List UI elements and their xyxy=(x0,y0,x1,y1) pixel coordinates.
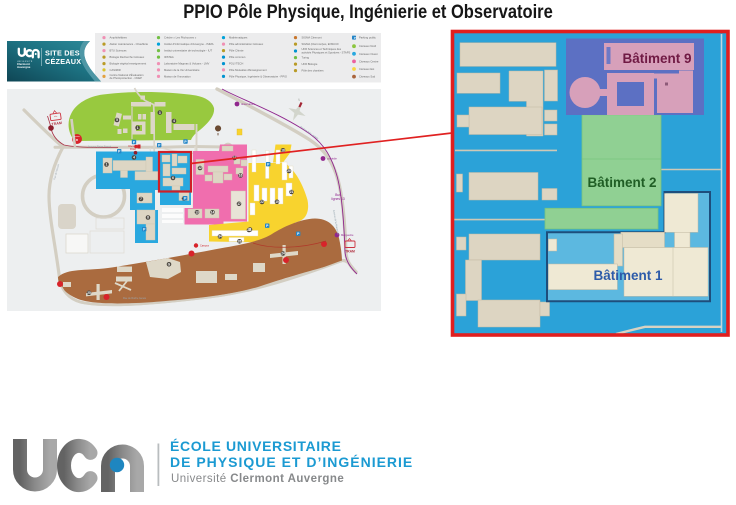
svg-text:lignes 13: lignes 13 xyxy=(331,197,345,201)
svg-text:comédie: comédie xyxy=(327,157,337,161)
svg-text:POLYTECH: POLYTECH xyxy=(229,62,243,66)
svg-text:Cézeaux Sud: Cézeaux Sud xyxy=(359,75,376,79)
svg-text:Bâtiment 1: Bâtiment 1 xyxy=(593,268,663,283)
svg-text:4: 4 xyxy=(173,119,175,123)
svg-text:Maison de la Vie Universitaire: Maison de la Vie Universitaire xyxy=(164,68,200,72)
svg-text:5: 5 xyxy=(116,118,118,122)
svg-text:Turing: Turing xyxy=(302,56,310,60)
svg-text:19: 19 xyxy=(275,200,279,204)
svg-text:Pétair: Pétair xyxy=(130,148,136,151)
svg-text:6: 6 xyxy=(172,176,174,180)
svg-text:18: 18 xyxy=(281,149,285,153)
svg-text:Cézeaux Nord: Cézeaux Nord xyxy=(359,44,377,48)
svg-text:IRSTEA: IRSTEA xyxy=(164,55,174,59)
svg-text:3: 3 xyxy=(159,111,161,115)
svg-text:Pôle Mutualisé d'Enseignement: Pôle Mutualisé d'Enseignement xyxy=(229,68,267,72)
svg-text:Rue de Roche Genès: Rue de Roche Genès xyxy=(123,297,147,300)
svg-text:SIGMA Clermont: SIGMA Clermont xyxy=(302,36,322,40)
svg-text:21: 21 xyxy=(290,190,294,194)
svg-text:de Photoprotection - CNEP: de Photoprotection - CNEP xyxy=(110,76,143,80)
svg-text:Biologie Recherche Cézeaux: Biologie Recherche Cézeaux xyxy=(110,55,145,59)
svg-text:Parking public: Parking public xyxy=(359,36,377,40)
svg-text:Amphithéâtres: Amphithéâtres xyxy=(110,36,128,40)
svg-text:25: 25 xyxy=(87,291,91,295)
svg-text:17: 17 xyxy=(237,202,241,206)
svg-text:CÉZEAUX: CÉZEAUX xyxy=(45,57,81,66)
svg-text:Pôle Chimie: Pôle Chimie xyxy=(229,49,244,53)
svg-text:Laboratoire Magmas & Volcans -: Laboratoire Magmas & Volcans - LMV xyxy=(164,62,209,66)
svg-text:20: 20 xyxy=(287,169,291,173)
svg-text:22: 22 xyxy=(260,200,264,204)
svg-text:4: 4 xyxy=(133,156,135,160)
svg-text:Atelier maintenance - Chauffer: Atelier maintenance - Chaufferie xyxy=(110,42,149,46)
svg-text:1: 1 xyxy=(137,126,139,130)
svg-text:P: P xyxy=(354,36,356,40)
svg-text:Pôle administration Cézeaux: Pôle administration Cézeaux xyxy=(229,42,264,46)
svg-text:UFR Biologie: UFR Biologie xyxy=(302,62,318,66)
svg-text:8: 8 xyxy=(147,216,149,220)
svg-text:SIGMA (Clermont)es, ENSCCF: SIGMA (Clermont)es, ENSCCF xyxy=(302,42,340,46)
svg-text:15: 15 xyxy=(233,156,237,160)
svg-text:Biologie végétal enseignement: Biologie végétal enseignement xyxy=(110,62,147,66)
svg-text:16: 16 xyxy=(239,174,243,178)
svg-text:Institut universitaire de tech: Institut universitaire de technologie - … xyxy=(164,49,212,53)
svg-text:Mathématiques: Mathématiques xyxy=(229,36,248,40)
svg-text:13: 13 xyxy=(195,211,199,215)
svg-text:TRAM: TRAM xyxy=(345,250,355,254)
svg-text:7: 7 xyxy=(140,197,142,201)
svg-text:Campus: Campus xyxy=(200,245,210,248)
svg-text:Marguerite: Marguerite xyxy=(341,233,354,237)
svg-text:12: 12 xyxy=(198,166,202,170)
svg-text:Pôle Physique, Ingénierie & Ob: Pôle Physique, Ingénierie & Observatoire… xyxy=(229,74,287,78)
svg-text:26: 26 xyxy=(238,240,242,244)
svg-text:Cézeaux Est: Cézeaux Est xyxy=(359,67,374,71)
svg-text:Chemin: Chemin xyxy=(128,146,137,148)
svg-text:Auvergne: Auvergne xyxy=(17,65,31,69)
svg-text:14: 14 xyxy=(211,211,215,215)
svg-text:1: 1 xyxy=(106,163,108,167)
svg-text:Bâtiment 9: Bâtiment 9 xyxy=(622,51,691,66)
svg-text:observatoire: observatoire xyxy=(241,102,256,106)
svg-text:Cézeaux Centre: Cézeaux Centre xyxy=(359,59,379,63)
svg-text:Crèche « Les Pitchounes »: Crèche « Les Pitchounes » xyxy=(164,36,197,40)
svg-text:Institut d'Informatique d'Auve: Institut d'Informatique d'Auvergne - ISI… xyxy=(164,42,214,46)
svg-text:Bâtiment 2: Bâtiment 2 xyxy=(587,175,656,190)
svg-text:Pôle commun: Pôle commun xyxy=(229,55,246,59)
svg-text:11: 11 xyxy=(248,228,252,232)
svg-text:Avenue Blaise Pascal: Avenue Blaise Pascal xyxy=(88,146,112,149)
svg-text:Maison de l'Innovation: Maison de l'Innovation xyxy=(164,74,191,78)
svg-text:34: 34 xyxy=(218,235,222,239)
svg-text:Cézeaux Ouest: Cézeaux Ouest xyxy=(359,52,378,56)
svg-text:BTU Sciences: BTU Sciences xyxy=(110,49,128,53)
svg-text:activités Physiques et Sportiv: activités Physiques et Sportives - STAPS xyxy=(302,50,351,54)
svg-text:CASIMIR: CASIMIR xyxy=(110,68,121,72)
svg-text:Pôle des chantiers: Pôle des chantiers xyxy=(302,69,325,73)
svg-text:24: 24 xyxy=(281,252,285,256)
